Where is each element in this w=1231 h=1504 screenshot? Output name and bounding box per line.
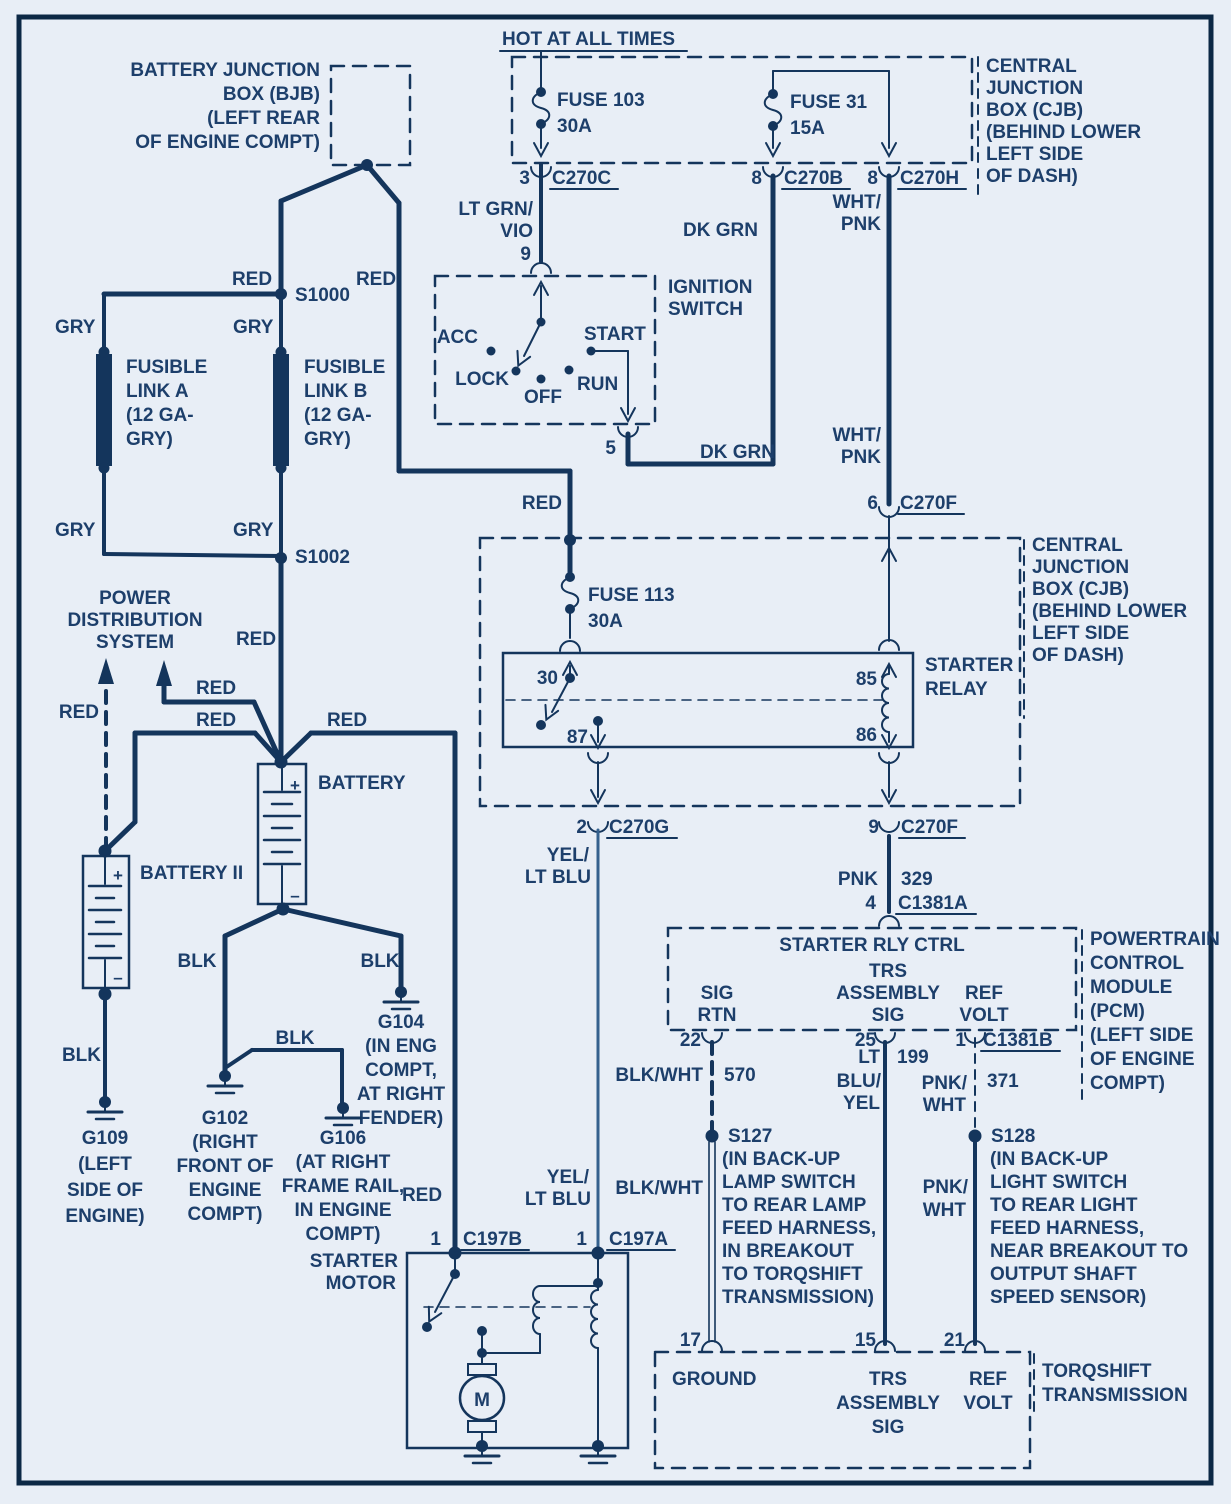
cjb-lower-label: BOX (CJB) bbox=[1032, 579, 1129, 600]
battery-label: BATTERY bbox=[318, 773, 406, 794]
hot-at-all-times-label: HOT AT ALL TIMES bbox=[502, 29, 675, 50]
switch-arrow-icon bbox=[512, 351, 530, 369]
circuit-number: 329 bbox=[901, 869, 933, 890]
cjb-lower-label: JUNCTION bbox=[1032, 557, 1129, 578]
trans-ground: GROUND bbox=[672, 1369, 756, 1390]
wire-color: BLK bbox=[275, 1028, 314, 1049]
pcm-label: POWERTRAIN bbox=[1090, 929, 1220, 950]
switch-arrow-icon bbox=[423, 1307, 441, 1325]
c270g-connector: 2 C270G bbox=[576, 817, 677, 838]
connector-pin: 9 bbox=[868, 817, 879, 838]
wire-color: BLK/WHT bbox=[615, 1065, 703, 1086]
starter-motor-label: MOTOR bbox=[326, 1273, 397, 1294]
red-feed-fuse113: RED FUSE 113 30A bbox=[399, 471, 675, 651]
splice-s127-note: TO TORQSHIFT bbox=[722, 1264, 863, 1285]
splice-s128-note: NEAR BREAKOUT TO bbox=[990, 1241, 1188, 1262]
wire-color: BLK/WHT bbox=[615, 1178, 703, 1199]
ground-g104: G104 bbox=[378, 1012, 425, 1033]
wire-color: RED bbox=[59, 702, 99, 723]
circuit-number: 371 bbox=[987, 1071, 1019, 1092]
wire-color: DK GRN bbox=[683, 220, 758, 241]
wire-color: RED bbox=[327, 710, 367, 731]
cjb-upper-label: BOX (CJB) bbox=[986, 100, 1083, 121]
bjb-label: BOX (BJB) bbox=[223, 84, 320, 105]
wire-color: LT bbox=[858, 1047, 880, 1068]
fusible-link-b-label: FUSIBLE bbox=[304, 357, 385, 378]
connector-c197a: C197A bbox=[609, 1229, 668, 1250]
wire-color: BLU/ bbox=[837, 1071, 882, 1092]
motor-m-label: M bbox=[474, 1390, 490, 1411]
ground-icon bbox=[326, 1102, 360, 1125]
fusible-link-a-bar bbox=[96, 354, 112, 466]
cjb-lower-label: CENTRAL bbox=[1032, 535, 1123, 556]
ground-g106-note: IN ENGINE bbox=[294, 1200, 391, 1221]
wire-color: RED bbox=[232, 269, 272, 290]
wire-color: LT BLU bbox=[525, 1189, 591, 1210]
battery2-label: BATTERY II bbox=[140, 863, 243, 884]
connector-pin: 1 bbox=[576, 1229, 587, 1250]
ground-icon bbox=[465, 1440, 499, 1463]
splice-dot bbox=[706, 1130, 719, 1143]
ground-g102-note: ENGINE bbox=[189, 1180, 262, 1201]
trans-pin-17: 17 bbox=[680, 1330, 701, 1351]
ignition-feed: LT GRN/ VIO 9 bbox=[458, 164, 551, 273]
fusible-link-b-label: GRY) bbox=[304, 429, 351, 450]
battery-plus: + bbox=[113, 866, 123, 885]
ignition-label: SWITCH bbox=[668, 299, 743, 320]
fusible-link-a-label: (12 GA- bbox=[126, 405, 194, 426]
wire-color: RED bbox=[196, 678, 236, 699]
pcm-label: MODULE bbox=[1090, 977, 1172, 998]
splice-s128-note: (IN BACK-UP bbox=[990, 1149, 1109, 1170]
fuse-31: FUSE 31 15A bbox=[765, 71, 896, 156]
ground-g109-note: SIDE OF bbox=[67, 1180, 143, 1201]
trans-ref-volt: VOLT bbox=[963, 1393, 1013, 1414]
wire-color: PNK/ bbox=[922, 1073, 968, 1094]
cjb-lower-label: OF DASH) bbox=[1032, 645, 1124, 666]
cjb-upper-label: (BEHIND LOWER bbox=[986, 122, 1141, 143]
ground-g104-note: (IN ENG bbox=[365, 1036, 437, 1057]
ignition-label: IGNITION bbox=[668, 277, 752, 298]
solenoid-coil-icon bbox=[533, 1286, 540, 1334]
power-dist-label: SYSTEM bbox=[96, 632, 174, 653]
circuit-number: 199 bbox=[897, 1047, 929, 1068]
ignition-position-run: RUN bbox=[577, 374, 618, 395]
wire-color: LT BLU bbox=[525, 867, 591, 888]
wht-pnk-wire: WHT/ PNK WHT/ PNK 6 C270F bbox=[832, 176, 964, 641]
wire-color: PNK/ bbox=[923, 1177, 969, 1198]
connector-c270f: C270F bbox=[900, 493, 957, 514]
ground-g104-note: COMPT, bbox=[365, 1060, 437, 1081]
wire-color: BLK bbox=[177, 951, 216, 972]
circuit-number: 570 bbox=[724, 1065, 756, 1086]
ignition-pin-9: 9 bbox=[520, 244, 531, 265]
connector-pin: 2 bbox=[576, 817, 587, 838]
torqshift-transmission: GROUND TRS ASSEMBLY SIG REF VOLT TORQSHI… bbox=[655, 1352, 1188, 1468]
wire-color: WHT/ bbox=[832, 192, 881, 213]
bjb-label: BATTERY JUNCTION bbox=[130, 60, 320, 81]
splice-s1000: S1000 bbox=[295, 285, 350, 306]
ignition-position-lock: LOCK bbox=[455, 369, 509, 390]
hot-feed-header: HOT AT ALL TIMES bbox=[500, 29, 687, 51]
bjb-box bbox=[331, 66, 410, 165]
ground-g102-note: FRONT OF bbox=[176, 1156, 273, 1177]
pcm-pin-1: 1 bbox=[955, 1030, 966, 1051]
pcm-trs-assembly: ASSEMBLY bbox=[836, 983, 940, 1004]
motor-brush bbox=[468, 1364, 496, 1375]
wire-color: DK GRN bbox=[700, 442, 775, 463]
trans-ref-volt: REF bbox=[969, 1369, 1007, 1390]
ground-g109-note: (LEFT bbox=[78, 1154, 132, 1175]
ignition-position-acc: ACC bbox=[437, 327, 478, 348]
splice-s128: S128 bbox=[991, 1126, 1035, 1147]
wire-color: RED bbox=[196, 710, 236, 731]
pcm-label: OF ENGINE bbox=[1090, 1049, 1195, 1070]
connector-icon bbox=[879, 916, 899, 926]
wire-color: GRY bbox=[233, 520, 274, 541]
pcm-sig-rtn: SIG bbox=[701, 983, 734, 1004]
bjb-label: OF ENGINE COMPT) bbox=[135, 132, 320, 153]
wire-color: RED bbox=[402, 1185, 442, 1206]
transmission-label: TORQSHIFT bbox=[1042, 1361, 1152, 1382]
ground-g106-note: COMPT) bbox=[306, 1224, 381, 1245]
connector-pin: 1 bbox=[430, 1229, 441, 1250]
splice-s128-note: LIGHT SWITCH bbox=[990, 1172, 1127, 1193]
connector-pin: 3 bbox=[519, 168, 530, 189]
fuse-icon bbox=[533, 87, 550, 129]
relay-pin-30: 30 bbox=[537, 668, 558, 689]
ground-g109: G109 bbox=[82, 1128, 128, 1149]
ground-g102-note: (RIGHT bbox=[192, 1132, 258, 1153]
splice-s127-note: (IN BACK-UP bbox=[722, 1149, 841, 1170]
ground-g106: G106 bbox=[320, 1128, 366, 1149]
connector-c270b: C270B bbox=[784, 168, 843, 189]
splice-s127: S127 bbox=[728, 1126, 772, 1147]
fusible-link-a-label: GRY) bbox=[126, 429, 173, 450]
ground-icon bbox=[208, 1070, 242, 1093]
splice-s128-note: SPEED SENSOR) bbox=[990, 1287, 1146, 1308]
starter-relay-label: RELAY bbox=[925, 679, 988, 700]
connector-c270h: C270H bbox=[900, 168, 959, 189]
ground-icon bbox=[581, 1440, 615, 1463]
battery-minus: – bbox=[113, 968, 122, 987]
fuse-31-name: FUSE 31 bbox=[790, 92, 868, 113]
pcm-ref-volt: REF bbox=[965, 983, 1003, 1004]
connector-icon bbox=[879, 822, 899, 832]
central-junction-box-lower: CENTRAL JUNCTION BOX (CJB) (BEHIND LOWER… bbox=[399, 471, 1187, 806]
connector-c1381b: C1381B bbox=[983, 1030, 1053, 1051]
connector-icon bbox=[702, 1341, 722, 1351]
ground-icon bbox=[384, 986, 418, 1009]
connector-pin: 8 bbox=[751, 168, 762, 189]
connector-pin: 4 bbox=[865, 893, 876, 914]
wire-color: YEL/ bbox=[547, 845, 590, 866]
trans-pin-15: 15 bbox=[855, 1330, 877, 1351]
transmission-label: TRANSMISSION bbox=[1042, 1385, 1188, 1406]
splice-s127-note: FEED HARNESS, bbox=[722, 1218, 876, 1239]
wire-color: BLK bbox=[62, 1045, 101, 1066]
ground-g106-note: (AT RIGHT bbox=[296, 1152, 391, 1173]
fuse-103-name: FUSE 103 bbox=[557, 90, 645, 111]
central-junction-box-upper: CENTRAL JUNCTION BOX (CJB) (BEHIND LOWER… bbox=[512, 51, 1141, 196]
connector-c270f: C270F bbox=[901, 817, 958, 838]
cjb-upper-label: OF DASH) bbox=[986, 166, 1078, 187]
trans-trs-assembly: TRS bbox=[869, 1369, 907, 1390]
connector-c1381a: C1381A bbox=[898, 893, 968, 914]
wire-color: GRY bbox=[55, 317, 96, 338]
wire-color: YEL bbox=[843, 1093, 880, 1114]
cjb-upper-label: CENTRAL bbox=[986, 56, 1077, 77]
wire-color: RED bbox=[356, 269, 396, 290]
relay-pin-87: 87 bbox=[567, 727, 588, 748]
bjb-label: (LEFT REAR bbox=[207, 108, 320, 129]
fuse-113-rating: 30A bbox=[588, 611, 623, 632]
fuse-31-rating: 15A bbox=[790, 118, 825, 139]
trans-trs-assembly: SIG bbox=[872, 1417, 905, 1438]
pcm-label: COMPT) bbox=[1090, 1073, 1165, 1094]
solenoid-coil-icon bbox=[591, 1290, 598, 1348]
connector-pin: 8 bbox=[867, 168, 878, 189]
wire-color: LT GRN/ bbox=[458, 199, 533, 220]
trans-pin-21: 21 bbox=[944, 1330, 966, 1351]
starter-relay-label: STARTER bbox=[925, 655, 1014, 676]
motor-brush bbox=[468, 1421, 496, 1432]
pcm-starter-rly-ctrl: STARTER RLY CTRL bbox=[779, 935, 965, 956]
battery-minus: – bbox=[290, 886, 299, 905]
ground-g104-note: AT RIGHT bbox=[357, 1084, 446, 1105]
battery-primary: BATTERY + – bbox=[258, 756, 406, 916]
wire-color: BLK bbox=[360, 951, 399, 972]
ignition-position-off: OFF bbox=[524, 387, 562, 408]
splice-s1002: S1002 bbox=[295, 547, 350, 568]
fuse-icon bbox=[765, 89, 782, 131]
pcm-ref-volt: VOLT bbox=[959, 1005, 1009, 1026]
wire-color: GRY bbox=[55, 520, 96, 541]
pcm-pin-22: 22 bbox=[680, 1030, 701, 1051]
splice-s128-note: FEED HARNESS, bbox=[990, 1218, 1144, 1239]
fusible-link-b-label: LINK B bbox=[304, 381, 367, 402]
pcm-label: CONTROL bbox=[1090, 953, 1184, 974]
pcm-label: (LEFT SIDE bbox=[1090, 1025, 1193, 1046]
fuse-103-rating: 30A bbox=[557, 116, 592, 137]
ignition-pin-5: 5 bbox=[605, 438, 616, 459]
splice-s127-note: TO REAR LAMP bbox=[722, 1195, 867, 1216]
ground-g102: G102 bbox=[202, 1108, 248, 1129]
wire-color: WHT bbox=[923, 1200, 967, 1221]
splice-s127-note: IN BREAKOUT bbox=[722, 1241, 854, 1262]
arrow-up-icon bbox=[156, 660, 172, 686]
cjb-upper-label: LEFT SIDE bbox=[986, 144, 1083, 165]
wire-color: GRY bbox=[233, 317, 274, 338]
fusible-link-a-label: LINK A bbox=[126, 381, 189, 402]
ignition-position-start: START bbox=[584, 324, 646, 345]
pcm-trs-assembly: TRS bbox=[869, 961, 907, 982]
fuse-103: FUSE 103 30A bbox=[533, 51, 645, 156]
pcm-sig-rtn: RTN bbox=[697, 1005, 736, 1026]
pcm-trs-assembly: SIG bbox=[872, 1005, 905, 1026]
trans-trs-assembly: ASSEMBLY bbox=[836, 1393, 940, 1414]
ground-g102-note: COMPT) bbox=[188, 1204, 263, 1225]
wire-color: WHT bbox=[923, 1095, 967, 1116]
pnk-329-wire: 9 C270F PNK 329 4 C1381A bbox=[838, 817, 976, 926]
dk-grn-wire: DK GRN DK GRN bbox=[628, 176, 775, 464]
wire-color: PNK bbox=[841, 447, 881, 468]
splice-s127-note: TRANSMISSION) bbox=[722, 1287, 874, 1308]
cjb-lower-label: LEFT SIDE bbox=[1032, 623, 1129, 644]
power-dist-label: DISTRIBUTION bbox=[67, 610, 202, 631]
wire-color: WHT/ bbox=[832, 425, 881, 446]
ground-g109-note: ENGINE) bbox=[65, 1206, 144, 1227]
pcm-label: (PCM) bbox=[1090, 1001, 1145, 1022]
ground-g106-note: FRAME RAIL, bbox=[282, 1176, 404, 1197]
power-dist-label: POWER bbox=[99, 588, 171, 609]
fuse-113-name: FUSE 113 bbox=[588, 585, 675, 606]
wire-color: PNK bbox=[838, 869, 878, 890]
fusible-link-b-label: (12 GA- bbox=[304, 405, 372, 426]
splice-s128-note: TO REAR LIGHT bbox=[990, 1195, 1138, 1216]
splice-s127-note: LAMP SWITCH bbox=[722, 1172, 856, 1193]
relay-coil-icon bbox=[882, 674, 889, 732]
connector-c270c: C270C bbox=[552, 168, 611, 189]
cjb-lower-label: (BEHIND LOWER bbox=[1032, 601, 1187, 622]
ignition-switch: IGNITION SWITCH ACC LOCK OFF RUN START 5 bbox=[435, 276, 752, 459]
wire-color: YEL/ bbox=[547, 1167, 590, 1188]
connector-c270g: C270G bbox=[609, 817, 669, 838]
ground-g104-note: FENDER) bbox=[359, 1108, 443, 1129]
diagram-canvas: HOT AT ALL TIMES CENTRAL JUNCTION BOX (C… bbox=[0, 0, 1231, 1504]
relay-pin-85: 85 bbox=[856, 669, 878, 690]
wire-color: PNK bbox=[841, 214, 881, 235]
wire-color: RED bbox=[522, 493, 562, 514]
wire-color: RED bbox=[236, 629, 276, 650]
connector-icon bbox=[531, 263, 551, 273]
relay-pin-86: 86 bbox=[856, 725, 877, 746]
connector-c197b: C197B bbox=[463, 1229, 522, 1250]
cjb-upper-label: JUNCTION bbox=[986, 78, 1083, 99]
ground-icon bbox=[88, 1096, 122, 1119]
splice-s128-note: OUTPUT SHAFT bbox=[990, 1264, 1137, 1285]
fuse-icon bbox=[562, 572, 579, 614]
wire-color: VIO bbox=[500, 221, 533, 242]
connector-icon bbox=[560, 641, 580, 651]
connector-pin: 6 bbox=[867, 493, 878, 514]
starter-relay: STARTER RELAY 30 87 85 86 bbox=[503, 640, 1014, 748]
arrow-up-icon bbox=[98, 658, 114, 684]
wiring-diagram: HOT AT ALL TIMES CENTRAL JUNCTION BOX (C… bbox=[0, 0, 1231, 1504]
starter-motor-label: STARTER bbox=[310, 1251, 399, 1272]
fusible-link-b-bar bbox=[273, 354, 289, 466]
fusible-link-a-label: FUSIBLE bbox=[126, 357, 207, 378]
